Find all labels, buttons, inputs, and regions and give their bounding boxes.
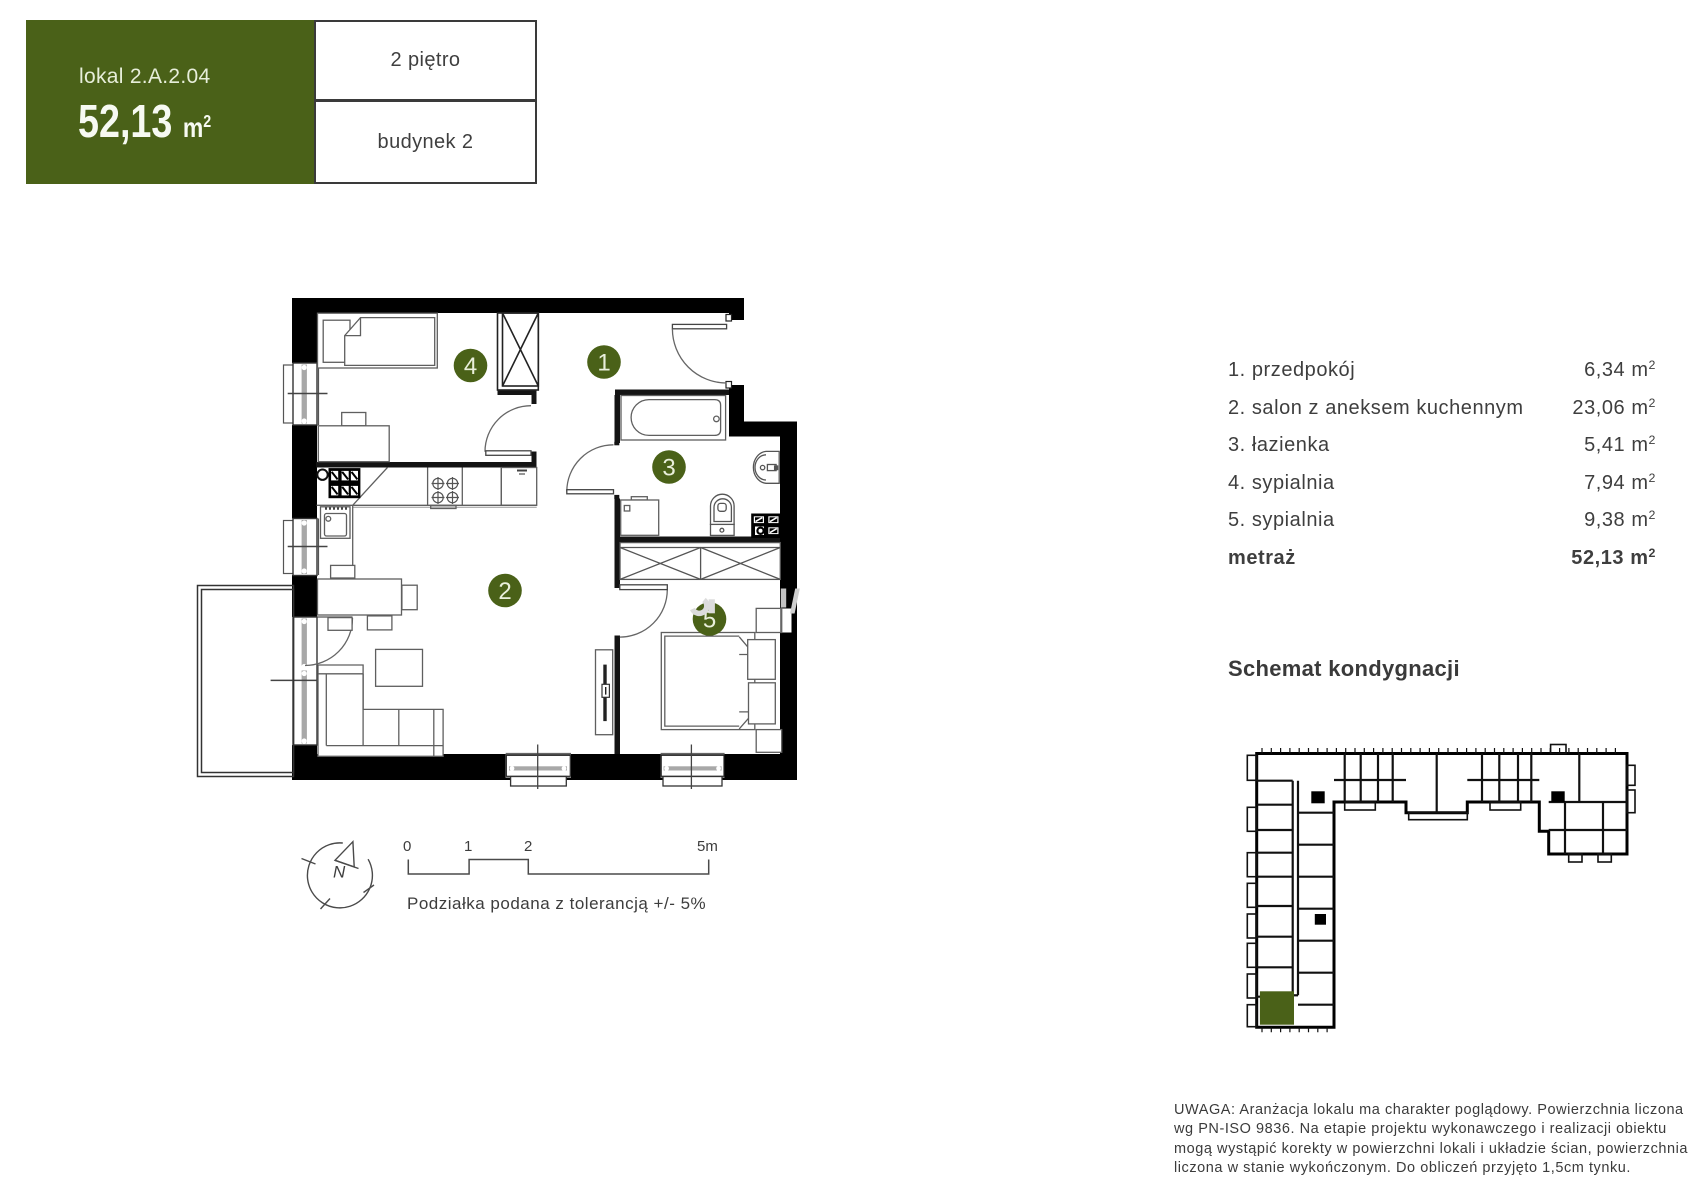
svg-text:2: 2 [498,578,511,605]
svg-text:N: N [333,863,346,882]
svg-text:1: 1 [597,350,610,377]
svg-text:4: 4 [464,353,477,380]
svg-text:3: 3 [662,455,675,482]
